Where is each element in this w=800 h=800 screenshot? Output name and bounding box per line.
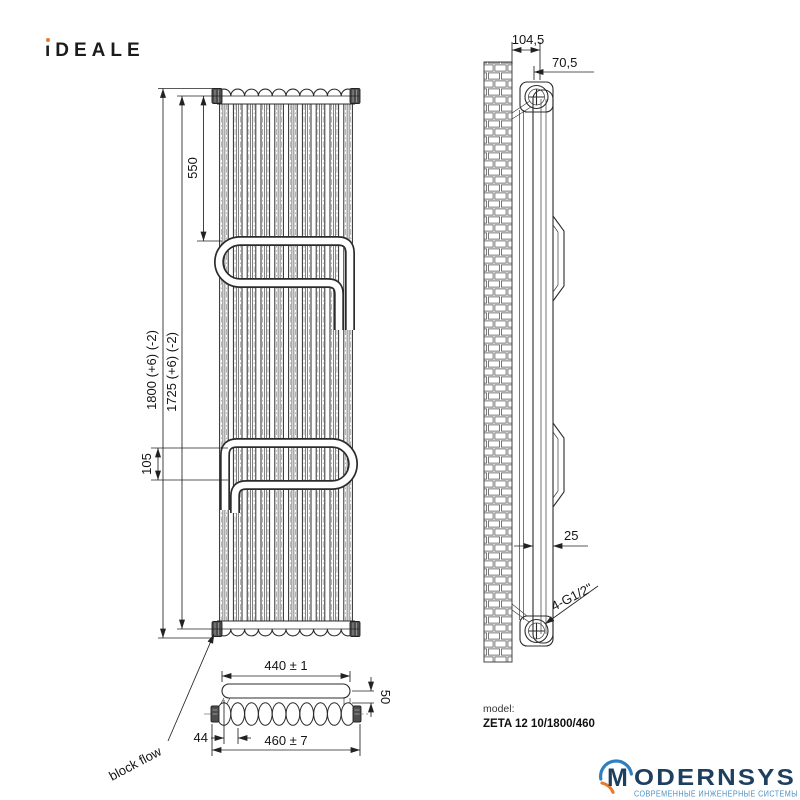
modernsys-wordmark: ODERNSYS (634, 764, 796, 790)
dim-104-5: 104,5 (512, 32, 545, 47)
dim-1725: 1725 (+6) (-2) (164, 332, 179, 412)
model-label: model: (483, 703, 515, 715)
dim-1800: 1800 (+6) (-2) (144, 330, 159, 410)
dim-105: 105 (139, 453, 154, 475)
front-view: 550 1800 (+6) (-2) 1725 (+6) (-2) 105 bl… (106, 89, 360, 784)
bottom-view: 440 ± 1 50 44 460 ± 7 (194, 658, 393, 756)
dim-460: 460 ± 7 (264, 733, 307, 748)
side-radiator-profile (512, 90, 564, 643)
block-flow-callout: block flow (106, 634, 214, 784)
modernsys-m: M (607, 764, 628, 792)
brick-wall (484, 62, 512, 662)
model-value: ZETA 12 10/1800/460 (483, 718, 595, 730)
block-flow-label: block flow (106, 743, 164, 783)
side-dimensions: 104,5 70,5 25 4-G1/2" (512, 32, 598, 624)
dim-50: 50 (378, 690, 393, 704)
dim-25: 25 (564, 528, 578, 543)
model-caption: model: ZETA 12 10/1800/460 (483, 703, 595, 730)
dim-440: 440 ± 1 (264, 658, 307, 673)
dim-thread: 4-G1/2" (549, 580, 596, 614)
bottom-sections (217, 703, 355, 726)
side-view: 104,5 70,5 25 4-G1/2" (484, 32, 598, 662)
dim-44: 44 (194, 730, 208, 745)
front-end-caps (212, 89, 360, 637)
modernsys-tagline: СОВРЕМЕННЫЕ ИНЖЕНЕРНЫЕ СИСТЕМЫ (634, 789, 798, 799)
dim-550: 550 (185, 157, 200, 179)
modernsys-logo: M ODERNSYS СОВРЕМЕННЫЕ ИНЖЕНЕРНЫЕ СИСТЕМ… (596, 753, 800, 799)
top-connection-fitting (520, 82, 553, 112)
technical-drawing-canvas: ıDEALE (0, 0, 800, 800)
front-columns (220, 104, 353, 621)
front-headers (217, 89, 355, 636)
dim-70-5: 70,5 (552, 55, 577, 70)
radiator-dimension-drawing: 550 1800 (+6) (-2) 1725 (+6) (-2) 105 bl… (0, 0, 800, 800)
